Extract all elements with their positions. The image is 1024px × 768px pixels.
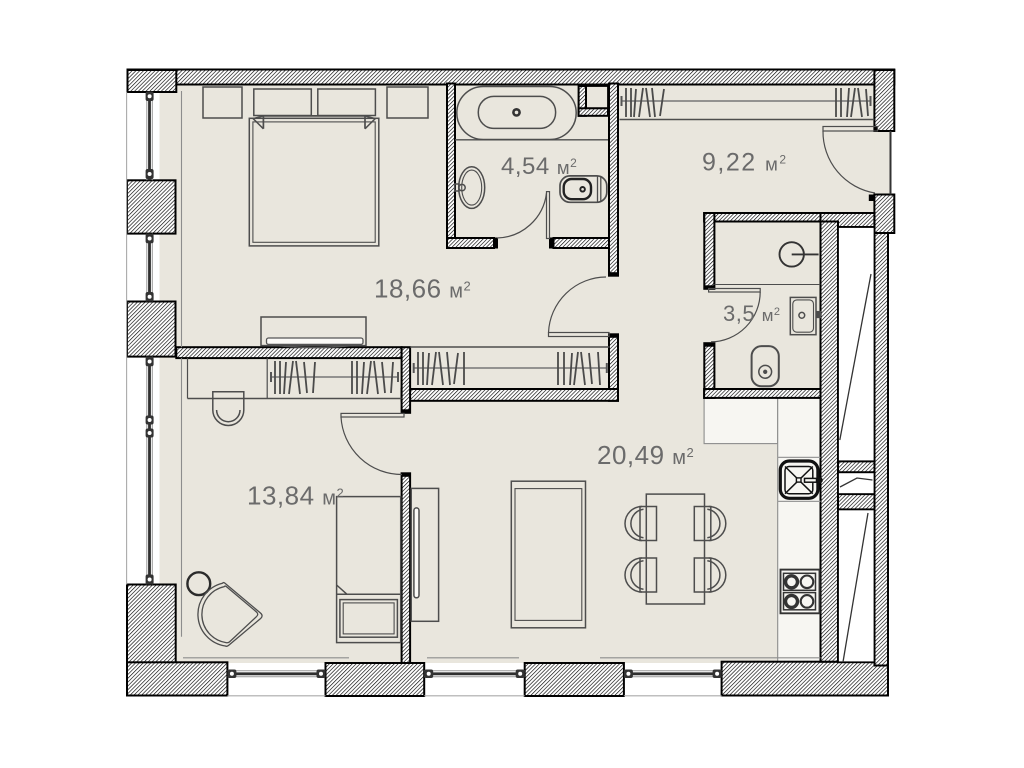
svg-text:4,54 м2: 4,54 м2 — [501, 153, 577, 180]
svg-text:9,22 м2: 9,22 м2 — [702, 149, 788, 177]
